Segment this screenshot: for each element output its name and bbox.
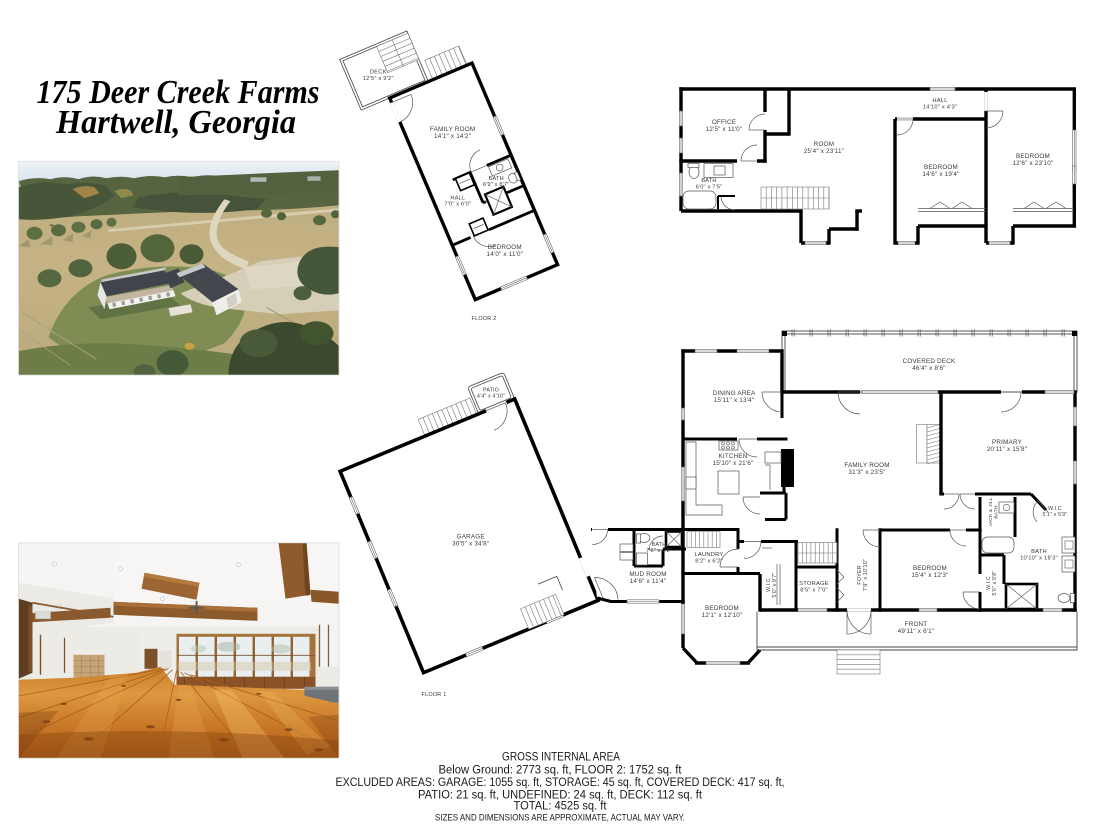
- svg-text:STORAGE8'5" x 7'0": STORAGE8'5" x 7'0": [799, 581, 829, 593]
- svg-text:FRONT49'11" x 6'1": FRONT49'11" x 6'1": [898, 621, 935, 635]
- svg-text:MUD ROOM14'6" x 11'4": MUD ROOM14'6" x 11'4": [629, 571, 666, 585]
- svg-text:BEDROOM12'1" x 12'10": BEDROOM12'1" x 12'10": [702, 605, 743, 619]
- svg-text:FLOOR 1: FLOOR 1: [422, 692, 447, 698]
- svg-text:SIZES AND DIMENSIONS ARE APPRO: SIZES AND DIMENSIONS ARE APPROXIMATE, AC…: [435, 813, 685, 823]
- svg-text:BEDROOM14'6" x 19'4": BEDROOM14'6" x 19'4": [922, 164, 959, 178]
- svg-text:BEDROOM14'0" x 11'0": BEDROOM14'0" x 11'0": [487, 244, 524, 258]
- svg-text:PRIMARY20'11" x 15'8": PRIMARY20'11" x 15'8": [987, 439, 1027, 453]
- svg-text:Hartwell, Georgia: Hartwell, Georgia: [55, 104, 296, 141]
- svg-text:BEDROOM12'6" x 23'10": BEDROOM12'6" x 23'10": [1013, 153, 1054, 167]
- svg-text:LAUNDRY8'2" x 6'2": LAUNDRY8'2" x 6'2": [695, 552, 724, 564]
- svg-text:GARAGE30'5" x 34'8": GARAGE30'5" x 34'8": [452, 533, 489, 547]
- svg-text:KITCHEN15'10" x 21'6": KITCHEN15'10" x 21'6": [713, 453, 754, 467]
- svg-text:DINING AREA15'11" x 13'4": DINING AREA15'11" x 13'4": [713, 390, 756, 404]
- svg-text:FAMILY ROOM31'3" x 23'5": FAMILY ROOM31'3" x 23'5": [844, 462, 889, 476]
- svg-text:FAMILY ROOM14'1" x 14'2": FAMILY ROOM14'1" x 14'2": [430, 126, 475, 140]
- svg-text:TOTAL: 4525 sq. ft: TOTAL: 4525 sq. ft: [514, 798, 608, 812]
- svg-text:FLOOR 2: FLOOR 2: [472, 316, 497, 322]
- svg-text:BEDROOM15'4" x 12'3": BEDROOM15'4" x 12'3": [911, 565, 948, 579]
